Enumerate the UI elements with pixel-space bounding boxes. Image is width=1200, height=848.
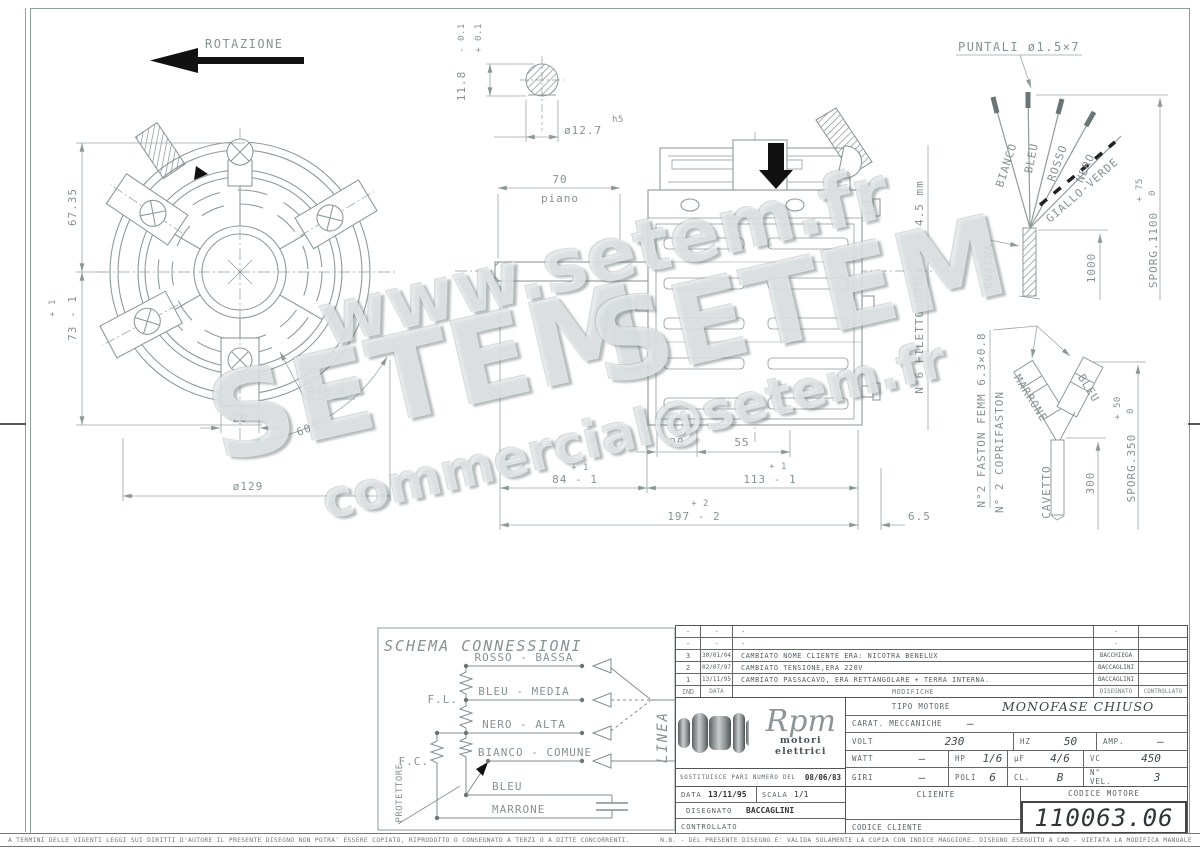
giri-value: — <box>919 771 926 784</box>
dim-197: 197 - 2 <box>667 510 720 523</box>
client-info: CLIENTE CODICE CLIENTE <box>846 787 1021 834</box>
mod-row: 3 30/01/04 CAMBIATO NOME CLIENTE ERA: NI… <box>676 650 1187 662</box>
mount-bracket <box>94 289 187 361</box>
shaft-tol-minus: - 0.1 <box>457 23 467 53</box>
drawing-sheet: ROTAZIONE <box>0 0 1200 848</box>
mod-by: - <box>1094 638 1139 649</box>
uf-label: µF <box>1014 754 1025 763</box>
mod-date: 30/01/04 <box>701 650 733 661</box>
drawing-info: DATA 13/11/95 SCALA 1/1 DISEGNATO BACCAG… <box>676 787 846 834</box>
company-logo: Rpm motori elettrici <box>676 698 846 768</box>
bottom-tab <box>221 330 259 414</box>
mod-ind: 2 <box>676 662 701 673</box>
mod-checked <box>1139 662 1187 673</box>
mod-by: BACCAGLINI <box>1094 662 1139 673</box>
schema-nero-alta: NERO - ALTA <box>482 718 566 731</box>
mod-ind: 1 <box>676 674 701 685</box>
mod-ind: - <box>676 626 701 637</box>
logo-name: Rpm <box>757 709 845 735</box>
watt-label: WATT <box>852 754 873 763</box>
sostituisce-label: SOSTITUISCE PARI NUMERO DEL <box>680 775 796 781</box>
dim-1000: 1000 <box>1085 253 1098 284</box>
hp-value: 1/6 <box>983 752 1003 765</box>
mod-row: - - - - <box>676 626 1187 638</box>
dim-84-tol: + 1 <box>571 463 589 473</box>
data-label: DATA <box>676 790 708 799</box>
cl-label: CL. <box>1014 773 1030 782</box>
watt-value: — <box>919 752 926 765</box>
sporg-350-tol-plus: + 50 <box>1113 396 1123 420</box>
schema-labels: ROSSO - BASSA BLEU - MEDIA NERO - ALTA B… <box>395 651 671 823</box>
shaft-tol-plus: + 0.1 <box>474 23 484 53</box>
disegnato-label: DISEGNATO <box>676 806 746 815</box>
uf-value: 4/6 <box>1050 752 1070 765</box>
rpm-logo-icon <box>676 710 749 756</box>
mod-ind: 3 <box>676 650 701 661</box>
rotation-label: ROTAZIONE <box>205 37 284 51</box>
dim-113-tol: + 1 <box>769 462 787 472</box>
giri-label: GIRI <box>852 773 873 782</box>
sporg-350: SPORG.350 <box>1125 434 1138 503</box>
legal-footer: A TERMINI DELLE VIGENTI LEGGI SUI DIRITT… <box>0 833 1200 847</box>
title-block: - - - - - - - - 3 30/01/04 CAMBIATO NOME… <box>675 625 1188 834</box>
tipo-motore-value: MONOFASE CHIUSO <box>1002 699 1154 714</box>
sporg-1100-tol-plus: + 75 <box>1135 178 1145 202</box>
hz-label: HZ <box>1020 737 1031 746</box>
footer-right-text: N.B. - DEL PRESENTE DISEGNO E' VALIDA SO… <box>660 837 1192 844</box>
rotation-arrow-icon <box>150 48 304 73</box>
dim-70-piano: piano <box>541 192 579 205</box>
guaina-label: GUAINA <box>982 243 995 289</box>
mod-header-row: IND DATA MODIFICHE DISEGNATO CONTROLLATO <box>676 686 1187 698</box>
puntali-title: PUNTALI ø1.5×7 <box>958 40 1080 54</box>
sporg-1100-tol-zero: 0 <box>1148 190 1158 196</box>
schema-bleu: BLEU <box>492 780 523 793</box>
mod-header-desc: MODIFICHE <box>733 686 1094 697</box>
mod-checked <box>1139 638 1187 649</box>
tipo-motore-label: TIPO MOTORE <box>892 702 950 711</box>
spec-row-giri: GIRI — POLI 6 CL. B N° VEL. 3 <box>846 768 1187 786</box>
scala-label: SCALA <box>756 787 794 802</box>
cliente-label: CLIENTE <box>846 787 1020 819</box>
dim-6-5: 6.5 <box>908 510 931 523</box>
schema-rosso-bassa: ROSSO - BASSA <box>474 651 573 664</box>
mod-by: BACCAGLINI <box>1094 674 1139 685</box>
switch-arrow-icon <box>476 762 488 776</box>
dim-20: 20 <box>232 412 247 425</box>
disegnato-value: BACCAGLINI <box>746 806 794 815</box>
dim-60deg: 60° <box>295 418 321 439</box>
codice-motore-label: CODICE MOTORE <box>1021 787 1187 801</box>
vc-value: 450 <box>1141 752 1161 765</box>
dim-r48-5: R48.5 <box>308 385 346 398</box>
mod-by: BACCHIEGA <box>1094 650 1139 661</box>
sostituisce-date: 08/06/83 <box>805 773 841 782</box>
side-view <box>455 108 935 442</box>
mod-header-checked: CONTROLLATO <box>1139 686 1187 697</box>
dim-70: 70 <box>552 173 567 186</box>
schema-bleu-media: BLEU - MEDIA <box>478 685 569 698</box>
mod-ind: - <box>676 638 701 649</box>
amp-label: AMP. <box>1103 737 1124 746</box>
nvel-value: 3 <box>1154 771 1161 784</box>
mod-row: 1 13/11/95 CAMBIATO PASSACAVO, ERA RETTA… <box>676 674 1187 686</box>
dim-73: 73 - 1 <box>66 295 79 341</box>
hp-label: HP <box>955 754 966 763</box>
mod-checked <box>1139 674 1187 685</box>
codice-cliente-label: CODICE CLIENTE <box>846 819 1020 834</box>
scala-value: 1/1 <box>794 790 808 799</box>
mod-desc: - <box>733 626 1094 637</box>
front-dimension-text: 67.35 + 1 73 - 1 20 ø129 R48.5 60° <box>48 188 346 493</box>
motor-code-cell: CODICE MOTORE 110063.06 <box>1021 787 1187 834</box>
footer-left-text: A TERMINI DELLE VIGENTI LEGGI SUI DIRITT… <box>8 837 630 844</box>
sporg-1100: SPORG.1100 <box>1147 212 1160 288</box>
schema-marrone: MARRONE <box>492 803 545 816</box>
poli-value: 6 <box>989 771 996 784</box>
mod-desc: CAMBIATO PASSACAVO, ERA RETTANGOLARE + T… <box>733 674 1094 685</box>
mod-date: 13/11/95 <box>701 674 733 685</box>
codice-motore-value: 110063.06 <box>1021 801 1187 834</box>
mod-by: - <box>1094 626 1139 637</box>
thread-note: N°6 FILETTO UTILE 4 ÷ 4.5 mm <box>913 180 926 393</box>
mod-row: - - - - <box>676 638 1187 650</box>
dim-113: 113 - 1 <box>743 473 796 486</box>
mod-row: 2 02/07/97 CAMBIATO TENSIONE,ERA 220V BA… <box>676 662 1187 674</box>
shaft-dim-d12-7: ø12.7 <box>564 124 602 137</box>
schema-linea: LINEA <box>655 711 671 763</box>
lead-wires-text: PUNTALI ø1.5×7 BIANCO BLEU ROSSO NERO GI… <box>958 40 1160 289</box>
hz-value: 50 <box>1064 735 1077 748</box>
volt-label: VOLT <box>852 737 873 746</box>
mod-date: - <box>701 626 733 637</box>
shaft-fit-h5: h5 <box>612 115 624 125</box>
dim-73-tol: + 1 <box>48 299 58 317</box>
sporg-350-tol-zero: 0 <box>1126 408 1136 414</box>
mod-desc: - <box>733 638 1094 649</box>
amp-value: — <box>1157 735 1164 748</box>
wire-label-bleu: BLEU <box>1022 142 1041 175</box>
mod-date: 02/07/97 <box>701 662 733 673</box>
cl-value: B <box>1057 771 1064 784</box>
cavetto-label: CAVETTO <box>1040 465 1053 518</box>
nvel-label: N° VEL. <box>1090 768 1127 786</box>
dim-300: 300 <box>1084 472 1097 495</box>
mod-header-date: DATA <box>701 686 733 697</box>
mod-checked <box>1139 626 1187 637</box>
motor-specs: TIPO MOTORE MONOFASE CHIUSO CARAT. MECCA… <box>846 698 1187 786</box>
mod-checked <box>1139 650 1187 661</box>
front-cable-gland <box>136 123 208 180</box>
volt-value: 230 <box>945 735 965 748</box>
spec-row-watt: WATT — HP 1/6 µF 4/6 VC 450 <box>846 751 1187 769</box>
spec-row-volt: VOLT 230 HZ 50 AMP. — <box>846 733 1187 751</box>
data-value: 13/11/95 <box>708 790 756 799</box>
dim-197-tol: + 2 <box>691 499 709 509</box>
wire-label-bianco: BIANCO <box>993 141 1020 189</box>
carat-label: CARAT. MECCANICHE <box>852 719 942 728</box>
faston-note2: N° 2 COPRIFASTON <box>993 391 1006 513</box>
schema-bianco-comune: BIANCO - COMUNE <box>478 746 592 759</box>
shaft-section-detail <box>520 56 564 132</box>
poli-label: POLI <box>955 773 976 782</box>
mod-header-by: DISEGNATO <box>1094 686 1139 697</box>
mod-desc: CAMBIATO TENSIONE,ERA 220V <box>733 662 1094 673</box>
dim-d129: ø129 <box>233 480 264 493</box>
connection-schema: SCHEMA CONNESSIONI <box>378 628 676 830</box>
top-screw <box>227 139 253 186</box>
schema-fl: F.L. <box>428 693 459 706</box>
sostituisce-row: SOSTITUISCE PARI NUMERO DEL 08/06/83 <box>676 768 846 786</box>
carat-value: — <box>967 717 974 730</box>
front-view <box>94 123 398 450</box>
vc-label: VC <box>1090 754 1101 763</box>
mod-date: - <box>701 638 733 649</box>
shaft-dim-11-8: 11.8 <box>455 71 468 102</box>
controllato-label: CONTROLLATO <box>676 822 737 831</box>
dim-84: 84 - 1 <box>552 473 598 486</box>
modifications-table: - - - - - - - - 3 30/01/04 CAMBIATO NOME… <box>676 626 1187 698</box>
lead-wires-detail <box>993 92 1121 299</box>
dim-55: 55 <box>734 436 749 449</box>
spec-row-tipo: TIPO MOTORE MONOFASE CHIUSO <box>846 698 1187 716</box>
faston-dims <box>993 326 1146 530</box>
faston-note1: N°2 FASTON FEMM 6.3×0.8 <box>975 332 988 507</box>
spec-row-carat: CARAT. MECCANICHE — <box>846 716 1187 734</box>
dim-side-20: 20 <box>669 436 684 449</box>
mod-desc: CAMBIATO NOME CLIENTE ERA: NICOTRA BENEL… <box>733 650 1094 661</box>
mod-header-ind: IND <box>676 686 701 697</box>
title-block-bottom: DATA 13/11/95 SCALA 1/1 DISEGNATO BACCAG… <box>676 786 1187 833</box>
dim-67-35: 67.35 <box>66 188 79 226</box>
rotation-note: ROTAZIONE <box>150 37 304 73</box>
schema-protettore: PROTETTORE <box>395 763 405 822</box>
